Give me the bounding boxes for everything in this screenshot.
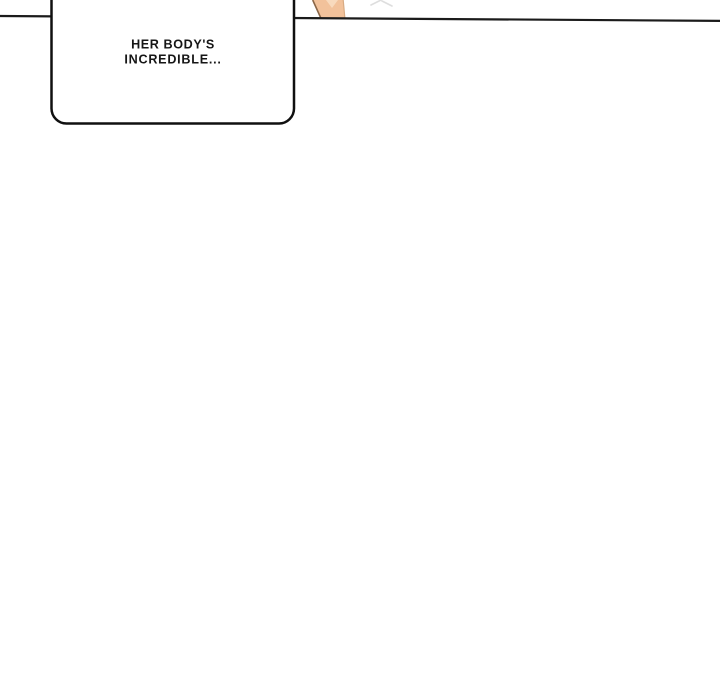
svg-text:INCREDIBLE...: INCREDIBLE... (124, 53, 221, 67)
svg-text:HER BODY'S: HER BODY'S (131, 38, 215, 52)
